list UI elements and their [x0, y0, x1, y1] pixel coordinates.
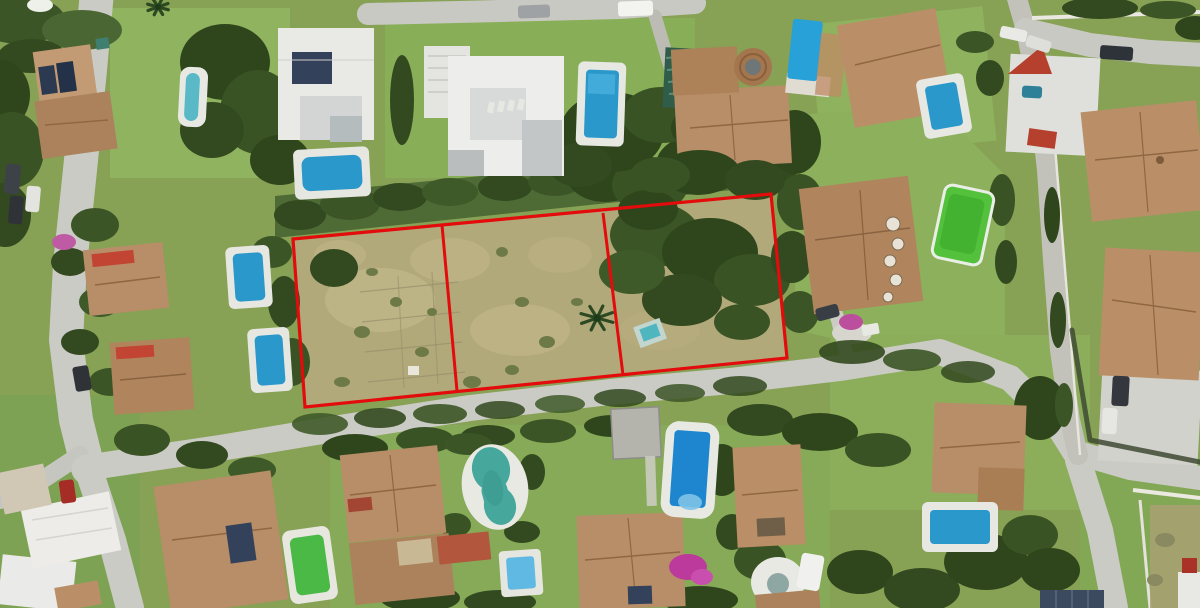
- car: [4, 163, 22, 194]
- tree: [827, 550, 893, 594]
- hedge: [292, 413, 348, 435]
- dry-patch: [470, 304, 570, 356]
- hedge: [390, 55, 414, 145]
- bush: [496, 247, 508, 257]
- outbuilding: [611, 407, 662, 459]
- tree: [274, 200, 326, 230]
- tree: [478, 173, 532, 201]
- tree: [71, 208, 119, 242]
- hedge: [475, 401, 525, 419]
- bush: [334, 377, 350, 387]
- hedge: [655, 384, 705, 402]
- car: [1022, 85, 1043, 98]
- pool: [930, 510, 990, 544]
- tree: [310, 249, 358, 287]
- hedge: [941, 361, 995, 383]
- patio-table: [890, 274, 902, 286]
- pool: [184, 73, 200, 122]
- house-roof: [1099, 247, 1200, 380]
- bush: [427, 308, 437, 316]
- tree: [1140, 1, 1196, 19]
- hedge: [976, 60, 1004, 96]
- scrub: [1147, 574, 1163, 586]
- patio-table: [886, 217, 900, 231]
- roof-section: [470, 88, 526, 140]
- chimney: [1156, 156, 1164, 164]
- hedge: [883, 349, 941, 371]
- car: [1101, 408, 1117, 435]
- pool-shallow: [588, 74, 616, 95]
- shed: [408, 366, 419, 375]
- house-roof: [671, 46, 739, 95]
- patio-table: [892, 238, 904, 250]
- roof-section: [448, 150, 484, 176]
- solar-panels: [628, 586, 653, 605]
- hedge: [713, 376, 767, 396]
- bush: [515, 297, 529, 307]
- roof-section: [522, 120, 562, 176]
- courtyard: [397, 538, 433, 565]
- tree: [845, 433, 911, 467]
- hedge: [535, 395, 585, 413]
- patio-table: [883, 292, 893, 302]
- tree-overhang: [630, 157, 690, 193]
- bougainvillea: [691, 569, 713, 585]
- satellite-image: [0, 0, 1200, 608]
- car: [1111, 376, 1130, 407]
- pool: [232, 252, 265, 302]
- roof-section: [330, 116, 362, 142]
- car: [518, 4, 550, 18]
- hedge: [956, 31, 994, 53]
- tree: [618, 190, 678, 230]
- van: [618, 0, 654, 16]
- hedge: [413, 404, 467, 424]
- bush: [571, 298, 583, 306]
- bougainvillea: [52, 234, 76, 250]
- patio-table: [884, 255, 896, 267]
- pool: [254, 334, 285, 386]
- bougainvillea: [839, 314, 863, 330]
- dry-patch: [410, 238, 490, 282]
- dry-patch: [528, 237, 592, 273]
- hedge: [819, 340, 885, 364]
- path: [645, 456, 657, 506]
- car: [1100, 45, 1134, 61]
- hedge: [354, 408, 406, 428]
- tower-top: [745, 59, 761, 75]
- hedge: [1055, 383, 1073, 427]
- jacuzzi: [767, 573, 789, 595]
- bush: [366, 268, 378, 276]
- tree: [714, 304, 770, 340]
- red-roof: [1182, 558, 1197, 573]
- bush: [354, 326, 370, 338]
- tree: [422, 178, 478, 206]
- pool: [506, 556, 536, 590]
- solar-panels: [292, 52, 332, 84]
- bush: [505, 365, 519, 375]
- tree: [373, 183, 427, 211]
- solar-panels: [225, 522, 256, 563]
- tree: [114, 424, 170, 456]
- red-roof: [437, 531, 492, 564]
- hedge: [1044, 187, 1060, 243]
- hedge: [995, 240, 1017, 284]
- aerial-scene: [0, 0, 1200, 608]
- car: [8, 195, 24, 224]
- house-roof-white: [1178, 572, 1200, 608]
- car: [25, 185, 41, 212]
- bush: [415, 347, 429, 357]
- bush: [390, 297, 402, 307]
- tree: [1020, 548, 1080, 592]
- hedge: [1050, 292, 1066, 348]
- bush: [463, 376, 481, 388]
- roof-detail: [95, 37, 109, 50]
- tree: [176, 441, 228, 469]
- hedge: [594, 389, 646, 407]
- courtyard: [757, 517, 786, 536]
- scrub: [1155, 533, 1175, 547]
- pool: [301, 154, 363, 191]
- tree: [520, 419, 576, 443]
- tree: [61, 329, 99, 355]
- red-awning: [347, 497, 372, 512]
- car-red: [58, 479, 76, 504]
- bush: [539, 336, 555, 348]
